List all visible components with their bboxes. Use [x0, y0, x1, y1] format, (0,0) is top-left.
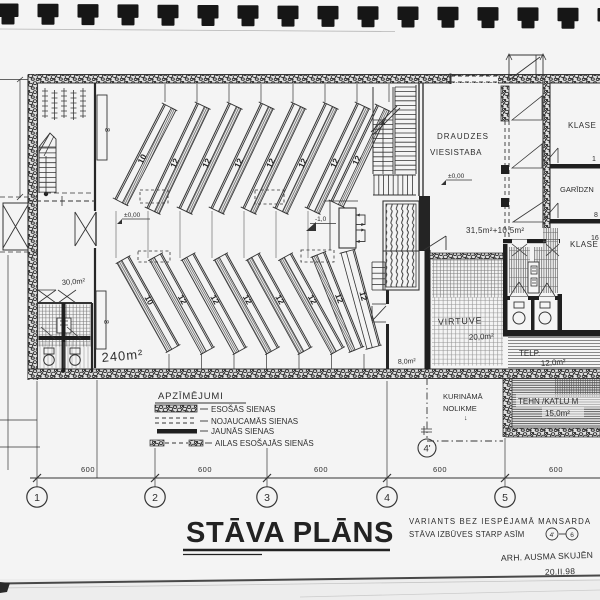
- svg-text:31,5m²+10,5m²: 31,5m²+10,5m²: [466, 226, 524, 235]
- svg-text:8: 8: [102, 320, 109, 324]
- svg-text:3: 3: [264, 492, 270, 504]
- svg-text:↓: ↓: [464, 415, 468, 422]
- svg-text:5: 5: [502, 492, 508, 504]
- svg-text:VARIANTS BEZ IESPĒJAMĀ MANSARD: VARIANTS BEZ IESPĒJAMĀ MANSARDA: [409, 517, 591, 526]
- svg-text:12,0m²: 12,0m²: [541, 357, 567, 368]
- svg-text:1: 1: [592, 156, 596, 163]
- svg-text:1: 1: [34, 492, 40, 504]
- svg-text:NOLIKME: NOLIKME: [443, 404, 477, 413]
- svg-text:8: 8: [103, 128, 110, 132]
- svg-text:STĀVA IZBŪVES STARP ASĪM: STĀVA IZBŪVES STARP ASĪM: [409, 530, 525, 539]
- svg-text:JAUNĀS SIENAS: JAUNĀS SIENAS: [211, 427, 274, 436]
- svg-text:VIESISTABA: VIESISTABA: [430, 148, 482, 157]
- svg-text:15,0m²: 15,0m²: [545, 409, 570, 418]
- svg-text:600: 600: [81, 465, 95, 474]
- svg-text:8,0m²: 8,0m²: [398, 358, 417, 366]
- svg-text:APZĪMĒJUMI: APZĪMĒJUMI: [158, 391, 224, 402]
- svg-text:600: 600: [433, 465, 447, 474]
- svg-text:4': 4': [550, 532, 555, 539]
- svg-text:2: 2: [152, 492, 158, 504]
- svg-text:8: 8: [594, 212, 598, 219]
- svg-text:600: 600: [198, 465, 212, 474]
- svg-text:±0,00: ±0,00: [124, 212, 141, 219]
- svg-text:NOJAUCAMĀS SIENAS: NOJAUCAMĀS SIENAS: [211, 417, 298, 426]
- svg-text:TEHN /KATLU M: TEHN /KATLU M: [518, 397, 579, 406]
- svg-text:TELP.: TELP.: [519, 349, 540, 358]
- svg-text:4: 4: [384, 492, 390, 504]
- svg-text:4': 4': [423, 444, 430, 455]
- svg-text:16: 16: [591, 235, 599, 242]
- svg-text:600: 600: [314, 465, 328, 474]
- svg-text:±0,00: ±0,00: [448, 173, 465, 180]
- svg-text:KLASE: KLASE: [568, 121, 596, 130]
- svg-text:VIRTUVE: VIRTUVE: [438, 315, 483, 327]
- svg-text:AILAS ESOŠAJĀS SIENĀS: AILAS ESOŠAJĀS SIENĀS: [215, 439, 314, 448]
- svg-text:-1,0: -1,0: [315, 216, 327, 223]
- svg-text:KURINĀMĀ: KURINĀMĀ: [443, 392, 483, 401]
- svg-text:ESOŠĀS SIENAS: ESOŠĀS SIENAS: [211, 405, 275, 414]
- svg-text:GARĪDZN: GARĪDZN: [560, 185, 594, 194]
- svg-text:6: 6: [570, 532, 574, 539]
- svg-text:STĀVA PLĀNS: STĀVA PLĀNS: [186, 517, 394, 549]
- svg-text:20,0m²: 20,0m²: [469, 332, 495, 342]
- svg-text:600: 600: [549, 465, 563, 474]
- svg-text:30,0m²: 30,0m²: [62, 276, 86, 287]
- svg-text:DRAUDZES: DRAUDZES: [437, 132, 489, 141]
